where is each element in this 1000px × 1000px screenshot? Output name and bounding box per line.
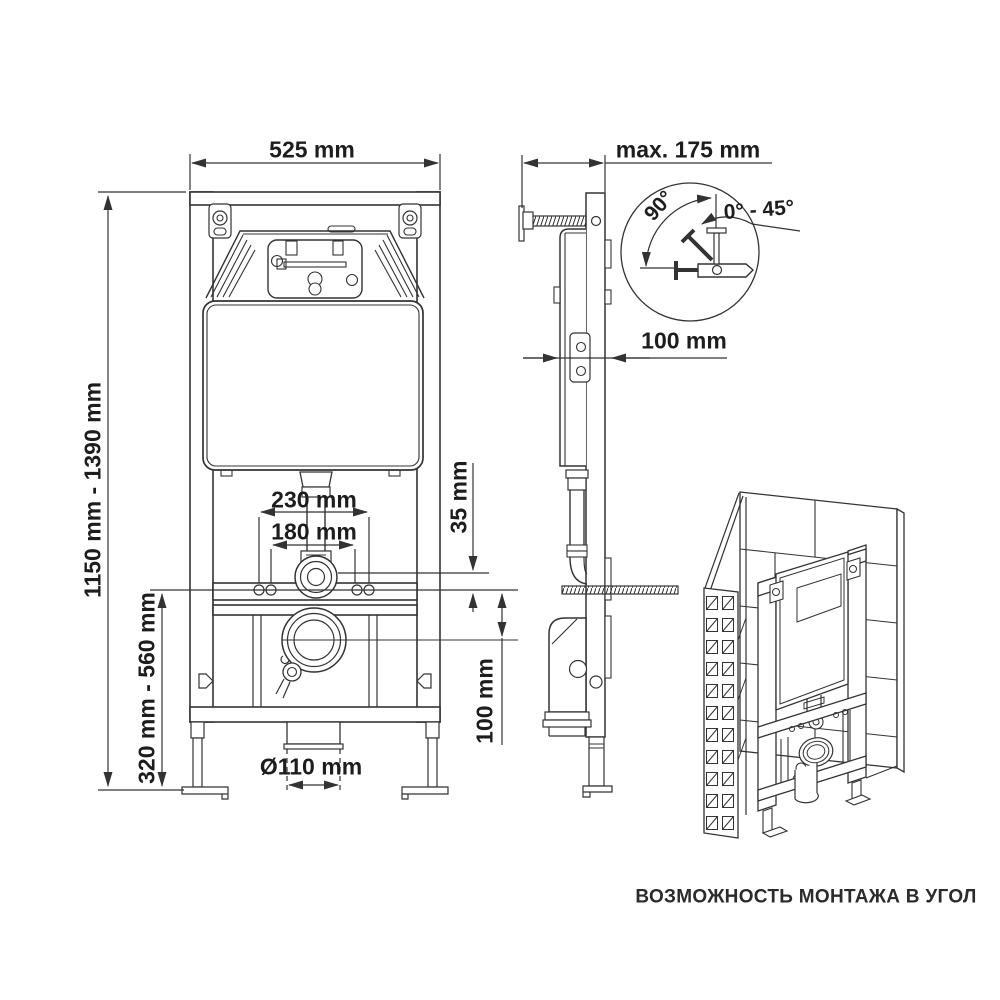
- cistern-side: [554, 229, 590, 466]
- dim-flush-offset-label: 35 mm: [448, 461, 471, 534]
- dim-height-range-label: 1150 mm - 1390 mm: [82, 382, 105, 598]
- dim-wall-distance-label: max. 175 mm: [616, 139, 760, 162]
- side-foot: [583, 737, 612, 797]
- dim-outlet-offset-label: 100 mm: [474, 658, 497, 744]
- corner-mount-caption: ВОЗМОЖНОСТЬ МОНТАЖА В УГОЛ: [635, 888, 976, 907]
- dim-width-label: 525 mm: [269, 139, 355, 162]
- corner-frame: [758, 545, 870, 837]
- corner-installation-view: [704, 492, 904, 838]
- cistern-front: [203, 204, 424, 476]
- dim-outlet-diameter-label: Ø110 mm: [260, 756, 362, 779]
- dim-flush-spacing-label: 230 mm: [271, 489, 357, 512]
- dim-bolt-spacing-label: 180 mm: [271, 521, 357, 544]
- angle-range-label: 0° - 45°: [723, 197, 795, 223]
- side-frame-plate: [586, 193, 611, 737]
- technical-drawing: [0, 0, 1000, 1000]
- installation-drawing-page: 525 mm max. 175 mm 1150 mm - 1390 mm 320…: [0, 0, 1000, 1000]
- dim-frame-depth-label: 100 mm: [641, 330, 727, 353]
- dim-lower-height-range-label: 320 mm - 560 mm: [136, 592, 159, 784]
- flush-pipe-side: [566, 470, 588, 584]
- fixing-rod-side: [562, 586, 678, 594]
